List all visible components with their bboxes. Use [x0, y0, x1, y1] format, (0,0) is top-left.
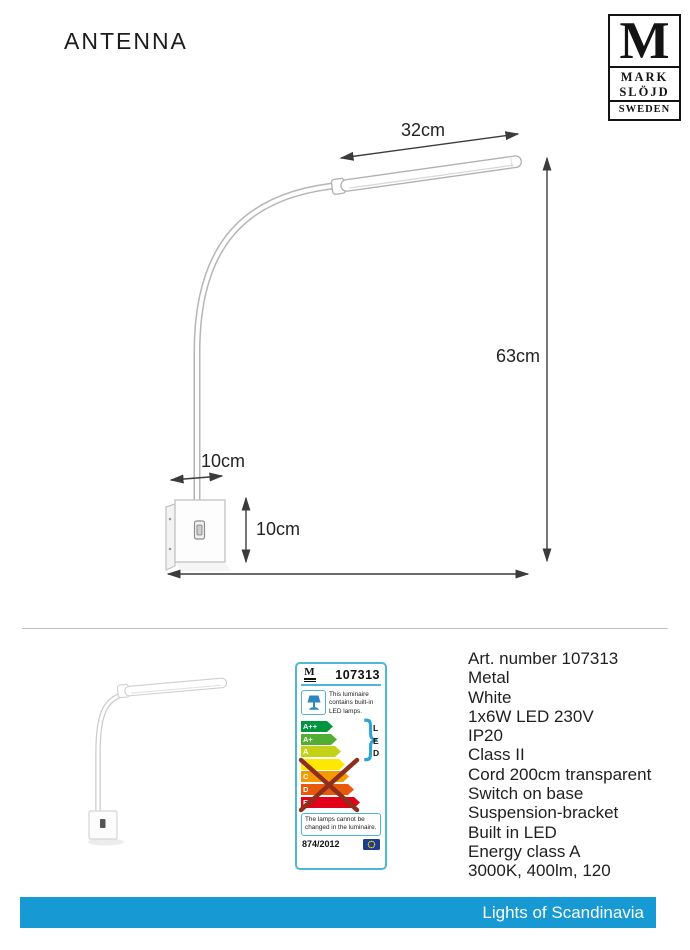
energy-article-number: 107313	[335, 668, 380, 682]
led-letter-d: D	[373, 747, 379, 760]
led-letter-l: L	[373, 722, 379, 735]
spec-line: Built in LED	[468, 823, 683, 842]
lamps-note: The lamps cannot be changed in the lumin…	[301, 813, 381, 836]
spec-line: Switch on base	[468, 784, 683, 803]
energy-logo-m: M	[304, 667, 314, 677]
energy-class-bar: A++	[301, 721, 327, 732]
spec-line: Suspension-bracket	[468, 803, 683, 822]
regulation-number: 874/2012	[302, 839, 340, 849]
wall-bracket	[166, 500, 231, 571]
lamp-icon-box	[301, 690, 326, 715]
product-diagram	[0, 0, 690, 640]
spec-line: 1x6W LED 230V	[468, 707, 683, 726]
energy-class-bar: A+	[301, 734, 331, 745]
led-letters: L E D	[373, 722, 379, 760]
led-letter-e: E	[373, 735, 379, 748]
dimension-label-height: 63cm	[488, 346, 540, 367]
spec-line: IP20	[468, 726, 683, 745]
energy-class-bar: A	[301, 746, 335, 757]
spec-line: Class II	[468, 745, 683, 764]
energy-label-footer: 874/2012	[301, 839, 381, 850]
spec-line: Cord 200cm transparent	[468, 765, 683, 784]
page: ANTENNA M MARK SLÖJD SWEDEN	[0, 0, 690, 950]
product-photo	[55, 653, 255, 868]
dimension-label-bracket-width: 10cm	[201, 451, 261, 472]
brand-text: Lights of Scandinavia	[482, 903, 644, 922]
energy-label-logo: M	[302, 667, 317, 682]
energy-label-header: M 107313	[301, 667, 381, 686]
dimension-label-head-length: 32cm	[378, 120, 468, 141]
spec-list: Art. number 107313MetalWhite1x6W LED 230…	[468, 649, 683, 881]
eu-flag-icon	[363, 839, 380, 850]
energy-cross-x	[298, 757, 360, 813]
brand-bar: Lights of Scandinavia	[20, 897, 656, 928]
lamp-icon	[304, 693, 324, 713]
energy-logo-bar	[304, 678, 316, 680]
spec-line: Art. number 107313	[468, 649, 683, 668]
lamp-head	[331, 153, 522, 194]
energy-logo-bar	[304, 681, 316, 683]
spec-line: Metal	[468, 668, 683, 687]
spec-line: Energy class A	[468, 842, 683, 861]
energy-label: M 107313 This luminaire contains built-i…	[295, 662, 387, 870]
energy-classes: A++A+ABCDE} L E D	[301, 721, 381, 810]
dimension-label-bracket-height: 10cm	[256, 519, 316, 540]
spec-line: White	[468, 688, 683, 707]
bracket-switch	[195, 521, 205, 539]
spec-line: 3000K, 400lm, 120	[468, 861, 683, 880]
